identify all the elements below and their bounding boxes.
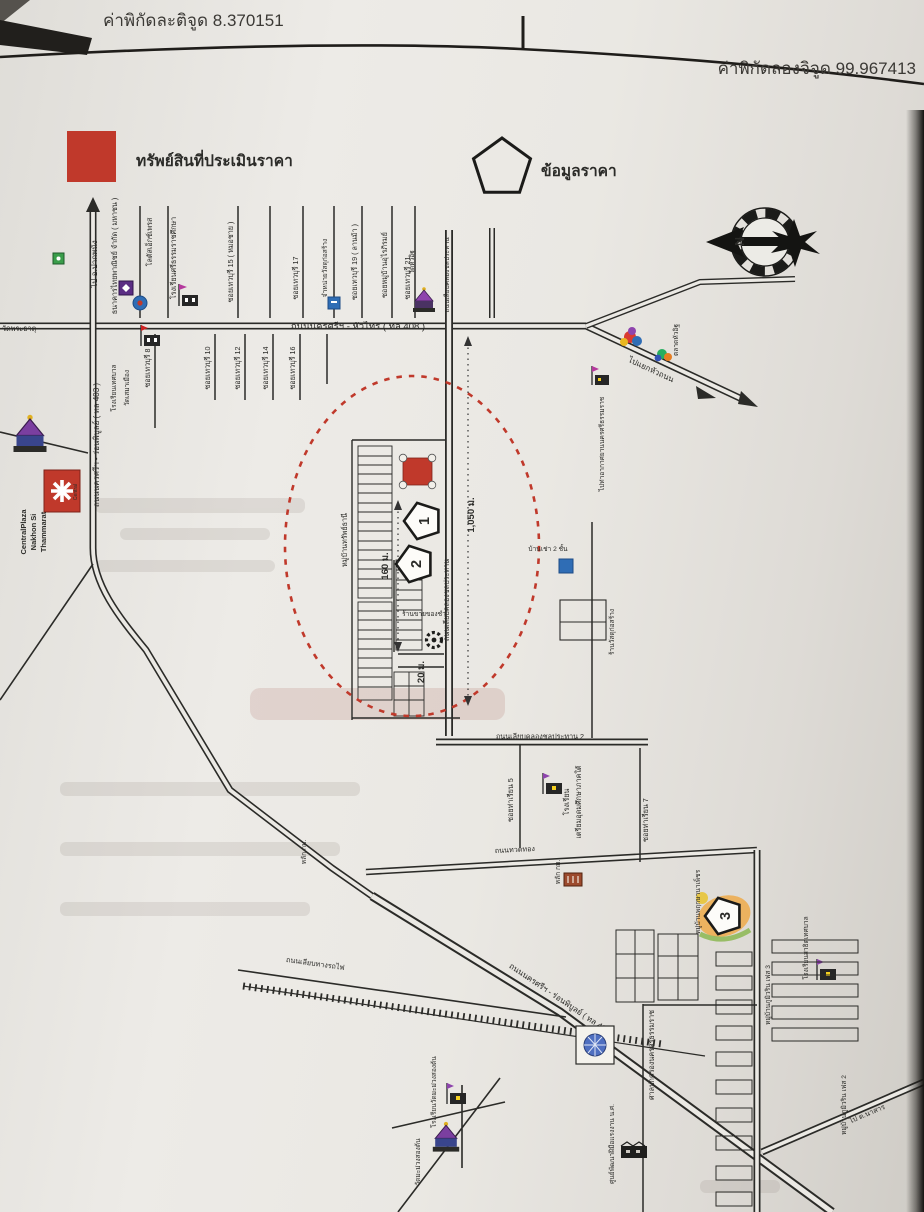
soi-north-label: ซอยเทวบุรี 19 ( ลานม้า ): [350, 224, 359, 300]
price-marker-1: 1: [404, 503, 438, 539]
place-label-material: จำหน่ายวัสดุก่อสร้าง: [321, 239, 329, 297]
place-label-phum3: หมู่บ้านภูมิวริน เฟส 3: [764, 965, 772, 1025]
property-marker: [399, 454, 436, 489]
road-label-canal: ถนนเลียบคลองชลประทาน: [442, 559, 451, 641]
factory-icon: [621, 1142, 647, 1158]
soi-south-label: ซอยเทวบุรี 10: [203, 346, 212, 389]
soi-north-label: ซอยหมู่บ้านอุไรภิรมย์: [380, 232, 389, 298]
place-label-skillcenter: ศูนย์พัฒนาฝีมือแรงงาน น.ศ.: [608, 1104, 616, 1184]
temple-icon: [14, 415, 47, 452]
longitude-label: ค่าพิกัดลองจิจูด 99.967413: [718, 59, 916, 79]
place-label-triam1: โรงเรียน: [562, 789, 571, 816]
road-label-canal-upper: ถนนเลียบคลองชลประทาน: [443, 237, 451, 313]
place-label-wathuait: วัดหัวอิฐ: [408, 250, 416, 274]
lotus-store-icon: [133, 296, 147, 310]
map-canvas: ค่าพิกัดละติจูด 8.370151 ค่าพิกัดลองจิจู…: [0, 0, 924, 1212]
school-icon: [543, 773, 562, 794]
school-icon: [179, 284, 198, 306]
legend-price-label: ข้อมูลราคา: [541, 162, 617, 182]
place-label-rental: บ้านเช่า 2 ชั้น: [528, 544, 568, 553]
place-label-central2: Nakhon Si: [29, 514, 38, 551]
place-label-airport: ไปท่าอากาศยานนครศรีธรรมราช: [598, 396, 606, 492]
place-label-village: หมู่บ้านทรัพย์ธานี: [340, 513, 349, 567]
latitude-label: ค่าพิกัดละติจูด 8.370151: [103, 11, 284, 31]
store-icon: [559, 559, 573, 573]
place-label-mamuangschool: โรงเรียนวัดมะม่วงสองต้น: [430, 1056, 438, 1128]
place-label-central1: CentralPlaza: [19, 509, 28, 555]
road-label-403: ถนนนครศรีฯ - ร่อนพิบูลย์ ( ทล 403 ): [91, 383, 102, 507]
place-label-semaschool1: โรงเรียนเทศบาล: [110, 364, 118, 411]
svg-text:1: 1: [417, 517, 433, 525]
place-label-scb: ธนาคารไทยพาณิชย์ จำกัด ( มหาชน ): [110, 198, 119, 314]
gear-icon: [427, 633, 442, 648]
place-label-srischool: โรงเรียนศรีธรรมราชศึกษา: [169, 217, 178, 299]
place-label-materialshop2: ร้านวัสดุก่อสร้าง: [608, 609, 616, 655]
legend-property-label: ทรัพย์สินที่ประเมินราคา: [136, 149, 293, 170]
road-label-tharian7: ซอยท่าเรียน 7: [641, 798, 650, 842]
road-label-canal2: ถนนเลียบคลองชลประทาน 2: [496, 732, 584, 741]
soi-south-label: ซอยเทวบุรี 8: [143, 348, 152, 387]
store-icon: [328, 297, 340, 309]
svg-text:3: 3: [718, 912, 734, 920]
place-label-central3: Thammarat: [39, 511, 48, 552]
gas-station-icon: [53, 253, 64, 264]
legend: ทรัพย์สินที่ประเมินราคา ข้อมูลราคา: [67, 131, 617, 192]
bleed-through: [60, 498, 780, 1193]
admin-court-icon: [576, 1026, 614, 1064]
road-label-pakphanang: ไป อ.ปากพนัง: [90, 240, 99, 289]
market-icon: [620, 327, 642, 346]
place-label-watphrathat: วัดพระธาตุ: [2, 324, 37, 333]
soi-south-label: ซอยเทวบุรี 14: [261, 346, 270, 389]
legend-property-marker: [67, 131, 116, 182]
place-label-kmpost: หลัก กม.: [300, 840, 308, 865]
place-label-triam2: เตรียมอุดมศึกษาภาคใต้: [574, 765, 583, 838]
bank-icon: [119, 281, 133, 295]
school-icon: [592, 366, 609, 385]
place-label-phum2: หมู่บ้านภูมิวริน เฟส 2: [840, 1075, 848, 1135]
price-marker-2: 2: [396, 546, 430, 582]
place-label-satit: โรงเรียนสาธิตเทศบาล: [802, 916, 810, 979]
distance-160: 160 ม.: [380, 552, 391, 579]
soi-north-label: ซอยเทวบุรี 17: [291, 256, 300, 299]
legend-price-marker: [474, 138, 531, 192]
place-label-admincourt: ศาลปกครองนครศรีธรรมราช: [647, 1010, 656, 1100]
place-label-semaschool2: วัดเสมาเมือง: [123, 370, 131, 406]
arrow-southeast-icon: [738, 391, 758, 407]
compass-rose: N: [706, 208, 820, 276]
soi-south-label: ซอยเทวบุรี 12: [233, 346, 242, 389]
centralplaza-logo: Central: [44, 470, 80, 512]
compass-north-label: N: [733, 237, 747, 246]
centralplaza-logo-text: Central: [73, 484, 79, 500]
svg-text:2: 2: [409, 560, 425, 568]
distance-1050: 1,050 ม.: [466, 497, 477, 532]
place-label-watmamuang: วัดมะม่วงสองต้น: [414, 1138, 422, 1186]
scan-edge-shadow: [906, 110, 924, 1212]
soi-north-label: ซอยเทวบุรี 15 ( หมอชาย ): [226, 222, 235, 303]
place-label-lotus: โลตัสเอ็กซ์เพรส: [144, 217, 154, 266]
scanned-map-page: ค่าพิกัดละติจูด 8.370151 ค่าพิกัดลองจิจู…: [0, 0, 924, 1212]
arrow-north-icon: [86, 197, 100, 212]
place-label-grocery: ร้านขายของชำ: [402, 610, 446, 618]
school-icon: [447, 1083, 466, 1104]
road-label-408: ถนนนครศรีฯ - หัวไทร ( ทล 408 ): [291, 321, 425, 333]
road-label-thuadthong: ถนนทวดทอง: [495, 844, 536, 855]
material-shop-building: [560, 600, 606, 640]
place-label-market: ตลาดหัวอิฐ: [672, 324, 680, 356]
place-label-pruksa: หมู่บ้านพฤกษานาเพ็ชร: [693, 869, 702, 934]
place-label-kmpost2: หลัก กม.: [554, 860, 562, 885]
soi-south-label: ซอยเทวบุรี 16: [288, 346, 297, 389]
road-label-tharian5: ซอยท่าเรียน 5: [506, 778, 515, 822]
shrine-icon: [564, 873, 582, 886]
temple-icon: [413, 287, 435, 312]
distance-20: 20 ม.: [416, 661, 427, 683]
road-label-railwayside: ถนนเลียบทางรถไฟ: [286, 955, 346, 972]
